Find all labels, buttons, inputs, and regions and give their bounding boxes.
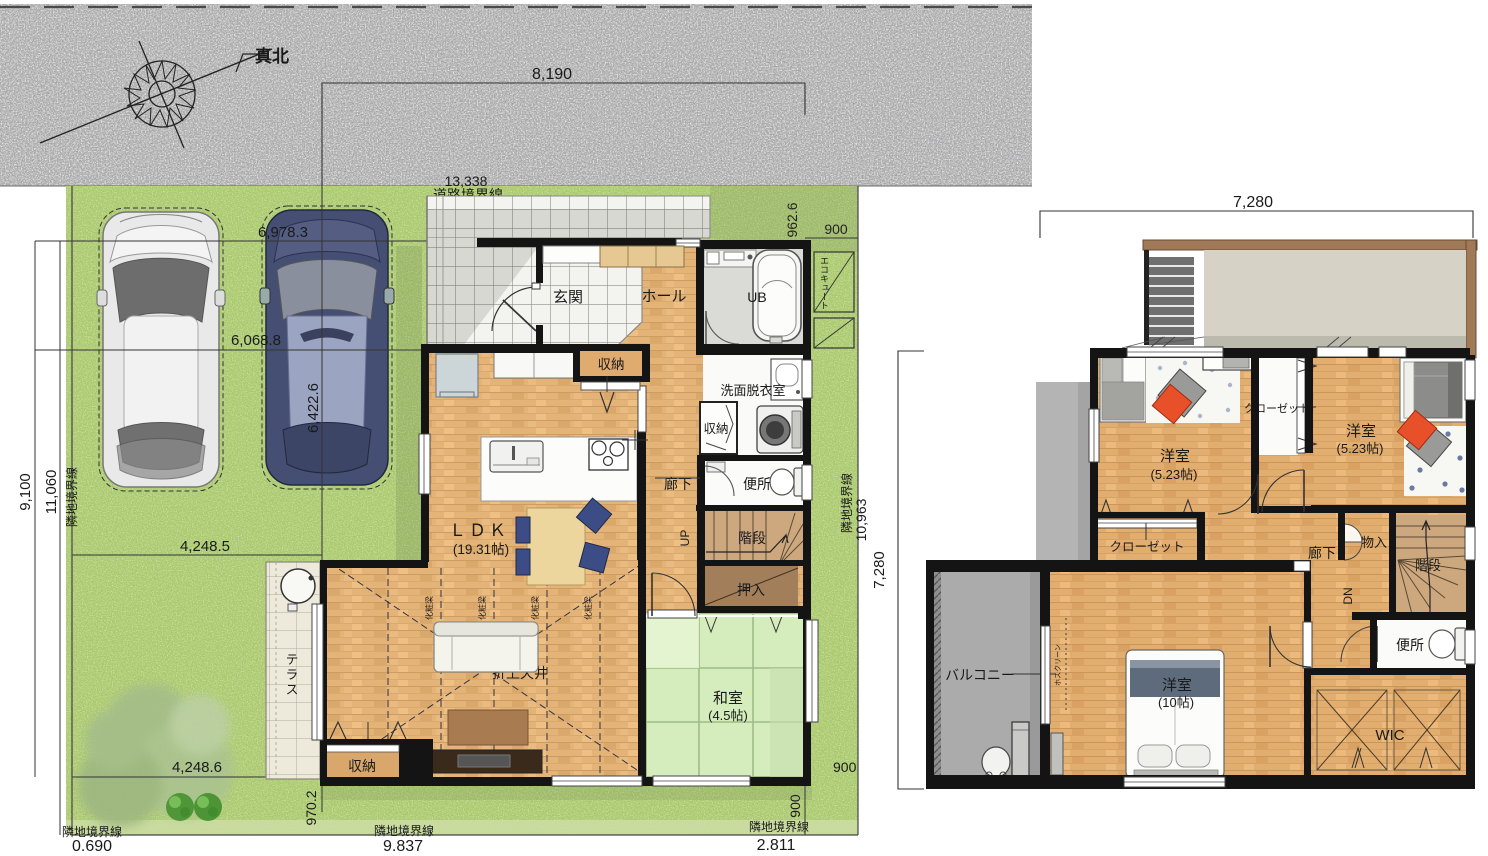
svg-text:WIC: WIC	[1375, 727, 1404, 744]
svg-text:9.837: 9.837	[383, 838, 423, 855]
svg-text:化粧梁: 化粧梁	[424, 596, 434, 620]
svg-text:バルコニー: バルコニー	[945, 667, 1015, 683]
svg-text:(19.31帖): (19.31帖)	[453, 542, 509, 557]
svg-text:(4.5帖): (4.5帖)	[708, 708, 748, 723]
svg-text:化粧梁: 化粧梁	[477, 596, 487, 620]
svg-text:4,248.5: 4,248.5	[180, 538, 230, 555]
svg-text:11,060: 11,060	[43, 470, 60, 515]
svg-text:押入: 押入	[737, 582, 765, 598]
svg-text:玄関: 玄関	[553, 289, 583, 306]
svg-text:7,280: 7,280	[871, 551, 888, 589]
svg-text:UP: UP	[678, 530, 692, 547]
svg-text:和室: 和室	[713, 690, 743, 707]
svg-text:6,422.6: 6,422.6	[305, 383, 322, 433]
svg-text:隣地境界線: 隣地境界線	[64, 467, 79, 527]
svg-text:洗面脱衣室: 洗面脱衣室	[720, 383, 785, 398]
svg-text:970.2: 970.2	[303, 790, 319, 825]
svg-text:廊下: 廊下	[1308, 545, 1336, 561]
svg-text:洋室: 洋室	[1160, 448, 1190, 465]
svg-text:9,100: 9,100	[17, 473, 34, 511]
svg-text:ホスクリーン: ホスクリーン	[1054, 644, 1062, 686]
svg-text:隣地境界線: 隣地境界線	[839, 473, 854, 533]
svg-text:7,280: 7,280	[1233, 194, 1273, 211]
svg-text:2.811: 2.811	[757, 837, 796, 854]
svg-text:階段: 階段	[738, 530, 766, 546]
svg-text:(5.23帖): (5.23帖)	[1151, 467, 1198, 482]
svg-text:洋室: 洋室	[1162, 677, 1192, 694]
svg-text:化粧梁: 化粧梁	[530, 596, 540, 620]
svg-text:収納: 収納	[703, 422, 728, 436]
svg-text:収納: 収納	[348, 758, 376, 774]
svg-text:0.690: 0.690	[72, 838, 112, 855]
svg-text:8,190: 8,190	[532, 66, 572, 83]
svg-text:真北: 真北	[255, 46, 289, 66]
svg-text:便所: 便所	[743, 476, 771, 492]
svg-text:隣地境界線: 隣地境界線	[374, 823, 434, 838]
svg-text:テラス: テラス	[284, 653, 299, 698]
svg-text:4,248.6: 4,248.6	[172, 759, 222, 776]
svg-text:6,068.8: 6,068.8	[231, 332, 281, 349]
svg-text:ホール: ホール	[641, 288, 686, 305]
svg-text:収納: 収納	[598, 357, 625, 372]
svg-text:隣地境界線: 隣地境界線	[749, 819, 809, 834]
svg-text:900: 900	[833, 759, 857, 775]
svg-text:ＬＤＫ: ＬＤＫ	[449, 521, 509, 540]
svg-text:化粧梁: 化粧梁	[583, 596, 593, 620]
svg-text:(10帖): (10帖)	[1158, 695, 1194, 710]
svg-text:クローゼット: クローゼット	[1109, 540, 1184, 554]
svg-text:(5.23帖): (5.23帖)	[1337, 441, 1384, 456]
svg-text:10,963: 10,963	[853, 498, 869, 541]
svg-text:エコキュート: エコキュート	[819, 256, 829, 310]
svg-text:UB: UB	[747, 289, 766, 305]
svg-text:6,978.3: 6,978.3	[258, 224, 308, 241]
svg-text:物入: 物入	[1361, 535, 1387, 550]
svg-text:洋室: 洋室	[1346, 423, 1376, 440]
svg-text:便所: 便所	[1396, 637, 1424, 653]
svg-text:DN: DN	[1341, 587, 1355, 604]
svg-text:隣地境界線: 隣地境界線	[62, 824, 122, 839]
svg-text:階段: 階段	[1415, 558, 1441, 573]
